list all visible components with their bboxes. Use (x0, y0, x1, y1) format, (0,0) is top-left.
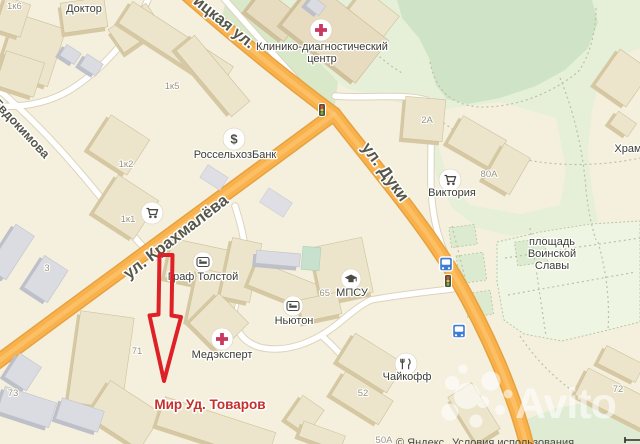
poi-clinic-label: Клинико-диагностический (256, 41, 388, 53)
bus-stop-icon (453, 324, 466, 338)
building-number: 80А (481, 169, 499, 180)
traffic-light-icon (319, 104, 326, 117)
watermark-bubble-icon (504, 390, 513, 399)
poi-doktor-label: Доктор (66, 3, 102, 15)
dollar-icon[interactable]: $ (223, 128, 245, 150)
watermark-bubble-icon (459, 365, 468, 374)
building-number: 52 (358, 388, 369, 399)
poi-newton-label: Ньютон (275, 315, 314, 327)
bed-icon[interactable] (283, 296, 303, 316)
map-svg[interactable]: ицкая ул.ул. Дукиул. КрахмалёваЕвдокимов… (0, 0, 640, 444)
marker-label: Мир Уд. Товаров (154, 397, 265, 412)
building (301, 246, 321, 270)
watermark-bubble-icon (442, 404, 459, 421)
watermark-bubble-icon (470, 415, 483, 428)
poi-ploshchad-voinskoy-slavy-label: площадь (529, 236, 575, 248)
poi-bank-label: РоссельхозБанк (194, 149, 277, 161)
building-number: 1к1 (121, 214, 136, 225)
bed-icon[interactable] (193, 252, 213, 272)
building-number: 65 (319, 288, 330, 299)
building-number: 3 (44, 263, 49, 274)
building-number: 50А (376, 435, 394, 444)
watermark-bubble-icon (454, 383, 480, 409)
poi-ploshchad-voinskoy-slavy[interactable]: площадьВоинскойСлавы (528, 236, 576, 272)
watermark-bubble-icon (482, 372, 501, 391)
poi-graf-tolstoy-label: Граф Толстой (168, 271, 239, 283)
poi-store-1k1[interactable] (141, 202, 163, 224)
building-number: 1к6 (7, 1, 22, 12)
poi-ploshchad-voinskoy-slavy-label: Славы (535, 260, 569, 272)
medical-cross-icon[interactable] (310, 19, 332, 41)
poi-medexpert-label: Медэксперт (192, 349, 253, 361)
watermark-text: Avito (515, 380, 616, 428)
terms-link[interactable]: Условия использования (452, 437, 574, 444)
graduation-cap-icon[interactable] (341, 269, 361, 289)
poi-chaykoff-label: Чайкофф (383, 371, 432, 383)
traffic-light-icon (445, 275, 452, 288)
poi-doktor[interactable]: Доктор (66, 3, 102, 15)
building-number: 1к5 (165, 81, 180, 92)
building-number: 1к2 (119, 159, 134, 170)
poi-victoria-label: Виктория (428, 187, 476, 199)
svg-text:$: $ (230, 132, 238, 147)
building-number: 71 (132, 346, 143, 357)
poi-khram-label: Храм (614, 143, 640, 155)
watermark-bubble-icon (445, 376, 459, 390)
map-canvas[interactable]: ицкая ул.ул. Дукиул. КрахмалёваЕвдокимов… (0, 0, 640, 444)
bus-stop-icon (440, 257, 453, 271)
poi-clinic-label: центр (307, 53, 337, 65)
watermark-bubble-icon (495, 405, 505, 415)
poi-khram[interactable]: Храм (614, 143, 640, 155)
copyright-text: © Яндекс (396, 437, 445, 444)
cart-icon[interactable] (141, 202, 163, 224)
building-number: 73 (8, 388, 19, 399)
poi-mpsu-label: МПСУ (336, 287, 369, 299)
medical-cross-icon[interactable] (211, 328, 233, 350)
watermark-bubble-icon (477, 396, 489, 408)
building-number: 2А (421, 115, 433, 126)
poi-ploshchad-voinskoy-slavy-label: Воинской (528, 248, 576, 260)
